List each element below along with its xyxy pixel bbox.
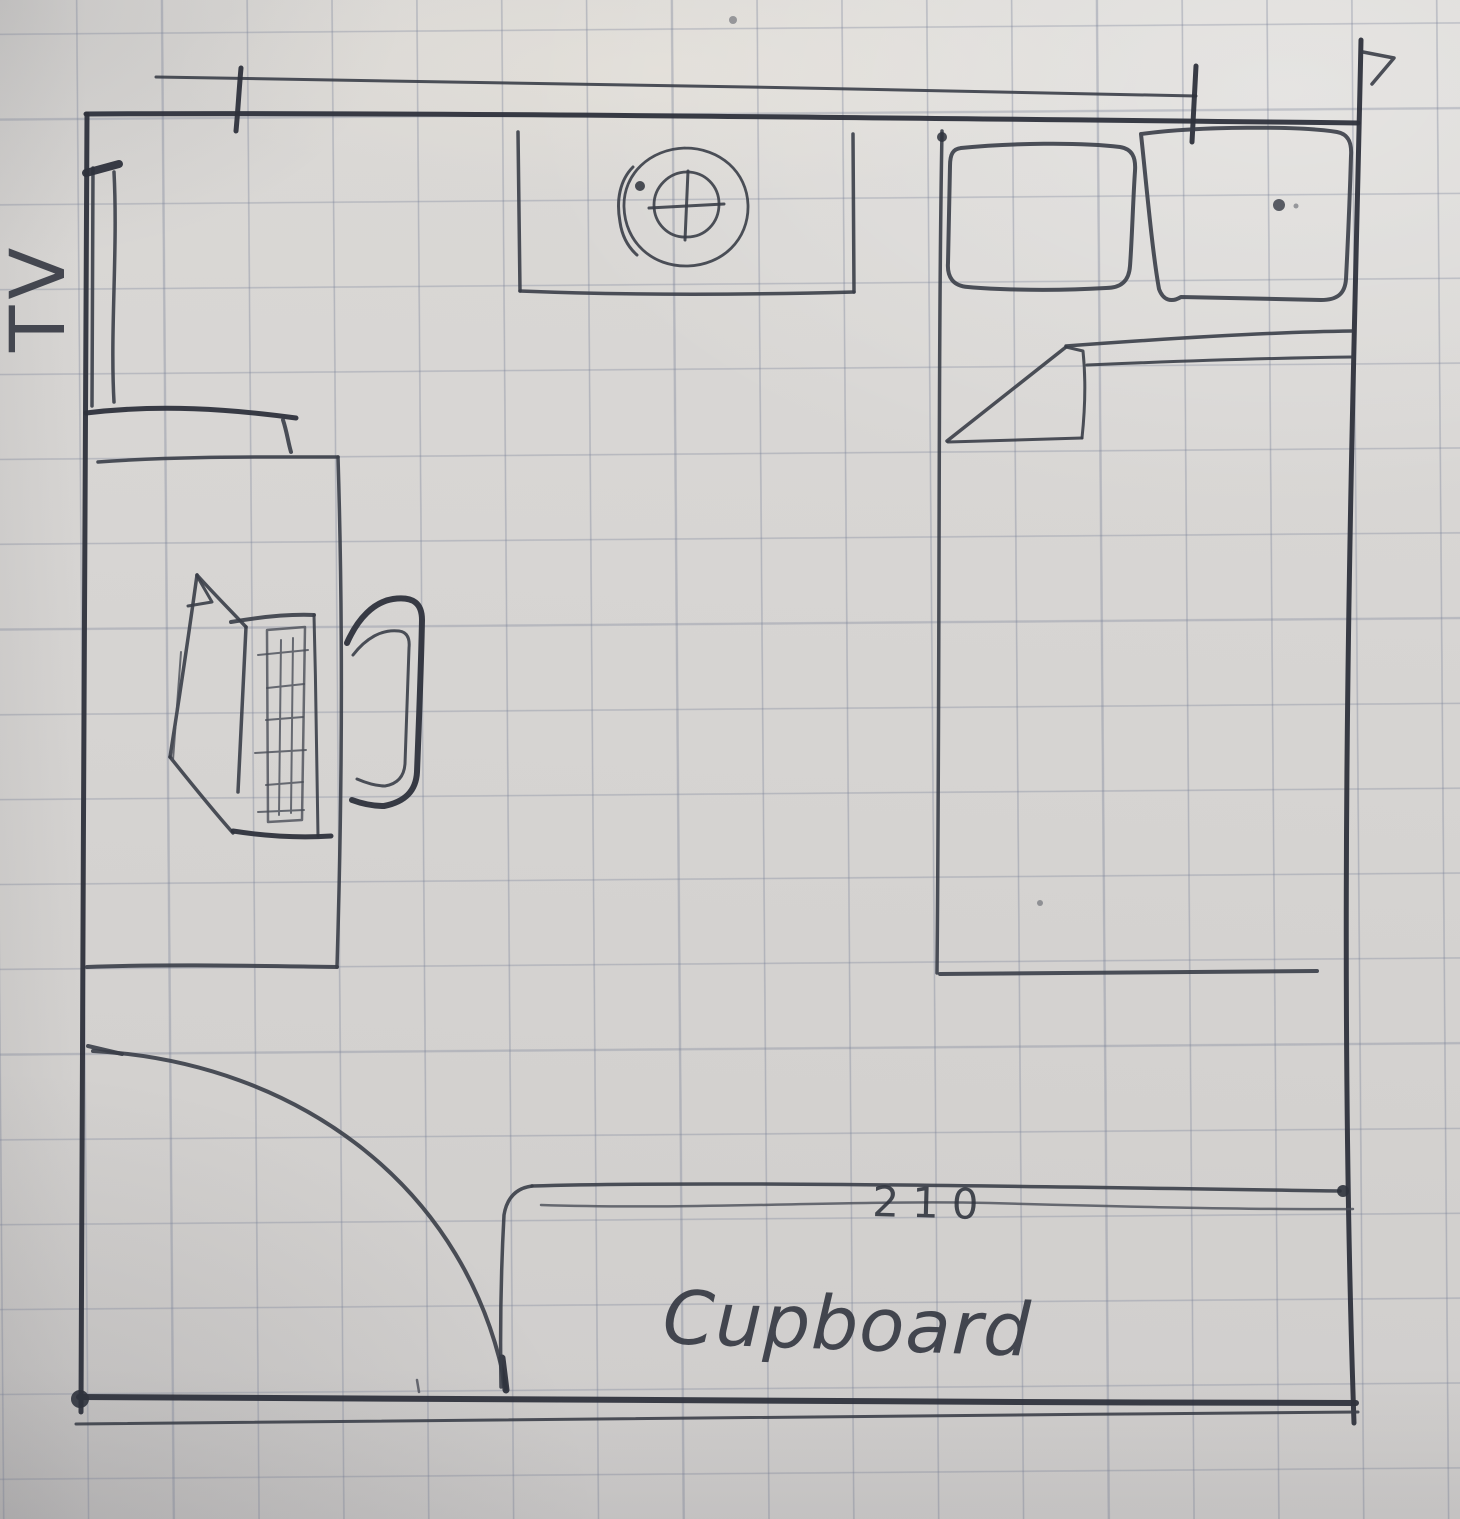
floorplan-photo: TV — [0, 0, 1460, 1519]
photo-lighting-overlay — [0, 0, 1460, 1519]
